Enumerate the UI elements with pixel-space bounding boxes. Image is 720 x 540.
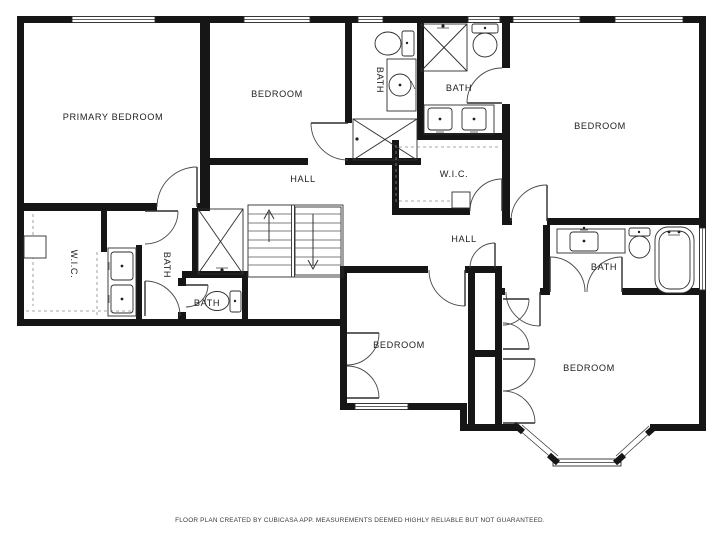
double-vanity-icon-bath-top-right xyxy=(424,105,494,134)
label-bedroom-bottom-right: BEDROOM xyxy=(563,363,615,373)
sink-icon-bath-top-left xyxy=(387,59,416,111)
label-bedroom-bottom-center: BEDROOM xyxy=(373,340,425,350)
closet-doors-bedroom-bottom-right-lower xyxy=(503,359,535,423)
toilet-icon-bath-top-left xyxy=(375,31,414,56)
sink-icon-bath-right xyxy=(557,227,625,253)
footer-disclaimer: FLOOR PLAN CREATED BY CUBICASA APP. MEAS… xyxy=(175,517,545,524)
floor-plan: PRIMARY BEDROOM BEDROOM BEDROOM BEDROOM … xyxy=(0,0,720,540)
door-bedroom-bottom-right xyxy=(506,292,540,326)
label-bedroom-top-middle: BEDROOM xyxy=(251,89,303,99)
label-bedroom-top-right: BEDROOM xyxy=(574,121,626,131)
door-bath-left-upper xyxy=(145,211,178,244)
bay-window xyxy=(514,424,656,466)
label-wic-left: W.I.C. xyxy=(69,250,79,279)
window-bottom-center xyxy=(355,404,408,410)
label-bath-small: BATH xyxy=(194,298,220,308)
label-primary-bedroom: PRIMARY BEDROOM xyxy=(63,112,164,122)
label-hall-lower: HALL xyxy=(451,234,476,244)
window-top-2 xyxy=(244,17,310,23)
window-right xyxy=(700,228,706,290)
floor-plan-page: PRIMARY BEDROOM BEDROOM BEDROOM BEDROOM … xyxy=(0,0,720,540)
shower-icon-bath-top-right xyxy=(421,24,467,71)
door-primary-bedroom xyxy=(157,167,197,207)
label-hall-upper: HALL xyxy=(290,174,315,184)
closet-doors-bedroom-bottom-right-upper xyxy=(503,299,529,349)
door-hall-vestibule xyxy=(470,243,495,268)
label-wic-top: W.I.C. xyxy=(440,169,469,179)
doors xyxy=(145,68,622,423)
stairs-icon xyxy=(248,205,343,277)
shower-icon-hall xyxy=(198,209,243,274)
door-bedroom-bottom-center xyxy=(429,270,465,306)
label-bath-left: BATH xyxy=(162,252,172,278)
bathtub-icon-bath-right xyxy=(655,227,694,293)
window-top-4 xyxy=(468,17,500,23)
stairs-down-arrow-icon xyxy=(308,214,318,269)
toilet-icon-bath-right xyxy=(629,228,650,258)
label-bath-right: BATH xyxy=(591,262,617,272)
toilet-icon-bath-top-right xyxy=(472,24,498,57)
door-bath-left-lower xyxy=(145,281,180,316)
label-bath-top-right: BATH xyxy=(446,83,472,93)
window-top-3 xyxy=(358,17,383,23)
window-top-1 xyxy=(72,17,155,23)
door-wic-top xyxy=(470,179,502,211)
door-bath-right-a xyxy=(550,257,585,292)
window-top-6 xyxy=(615,17,683,23)
door-bedroom-top-middle xyxy=(311,123,348,160)
label-bath-top-left: BATH xyxy=(375,67,385,93)
door-bedroom-top-right xyxy=(511,185,547,221)
door-bath-top-right xyxy=(467,68,502,103)
window-top-5 xyxy=(513,17,580,23)
stairs-up-arrow-icon xyxy=(264,210,274,242)
double-vanity-icon-bath-left xyxy=(108,248,136,316)
shower-icon-bath-top-left xyxy=(353,119,417,160)
